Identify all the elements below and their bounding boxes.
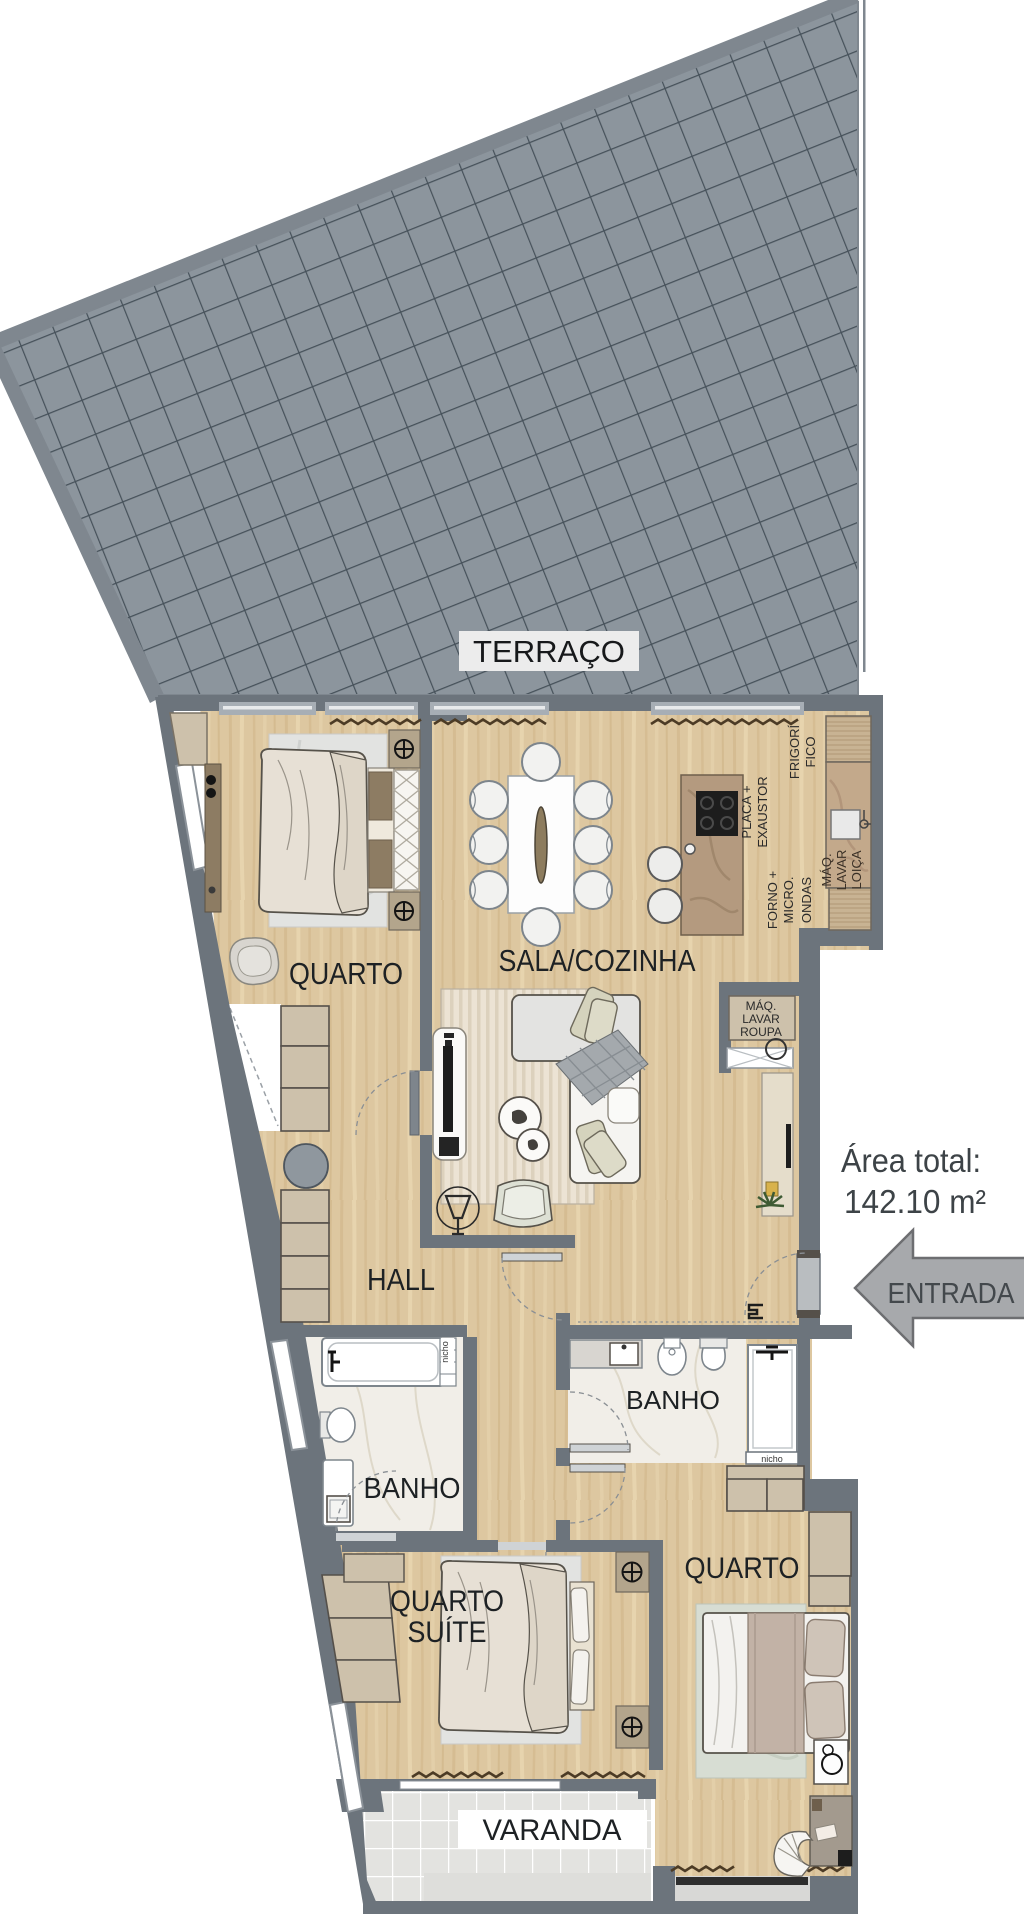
svg-text:EXAUSTOR: EXAUSTOR — [755, 776, 770, 847]
svg-text:QUARTO: QUARTO — [289, 956, 403, 991]
svg-text:TERRAÇO: TERRAÇO — [473, 634, 625, 669]
svg-text:MÁQ.: MÁQ. — [819, 853, 834, 886]
svg-text:Área total:: Área total: — [841, 1142, 981, 1179]
svg-text:BANHO: BANHO — [626, 1385, 720, 1415]
svg-text:HALL: HALL — [367, 1262, 435, 1297]
svg-text:QUARTO: QUARTO — [390, 1585, 504, 1618]
svg-text:LAVAR: LAVAR — [834, 850, 849, 891]
svg-text:ONDAS: ONDAS — [799, 877, 814, 924]
svg-text:FORNO +: FORNO + — [765, 871, 780, 929]
svg-text:ENTRADA: ENTRADA — [888, 1278, 1016, 1310]
svg-text:SUÍTE: SUÍTE — [408, 1616, 487, 1649]
svg-text:LOIÇA: LOIÇA — [849, 850, 864, 889]
svg-text:MÁQ.: MÁQ. — [746, 998, 777, 1013]
svg-text:FRIGORÍ: FRIGORÍ — [787, 725, 802, 780]
svg-text:LAVAR: LAVAR — [742, 1012, 780, 1026]
svg-text:ROUPA: ROUPA — [740, 1025, 782, 1039]
svg-text:VARANDA: VARANDA — [483, 1814, 622, 1847]
svg-text:142.10 m²: 142.10 m² — [844, 1183, 986, 1220]
svg-text:QUARTO: QUARTO — [685, 1552, 800, 1585]
svg-text:MICRO.: MICRO. — [781, 877, 796, 924]
svg-text:BANHO: BANHO — [364, 1473, 461, 1505]
svg-text:SALA/COZINHA: SALA/COZINHA — [499, 943, 696, 978]
svg-text:PLACA +: PLACA + — [739, 785, 754, 838]
svg-text:FICO: FICO — [803, 736, 818, 767]
svg-text:nicho: nicho — [761, 1454, 783, 1464]
svg-text:nicho: nicho — [440, 1341, 450, 1363]
